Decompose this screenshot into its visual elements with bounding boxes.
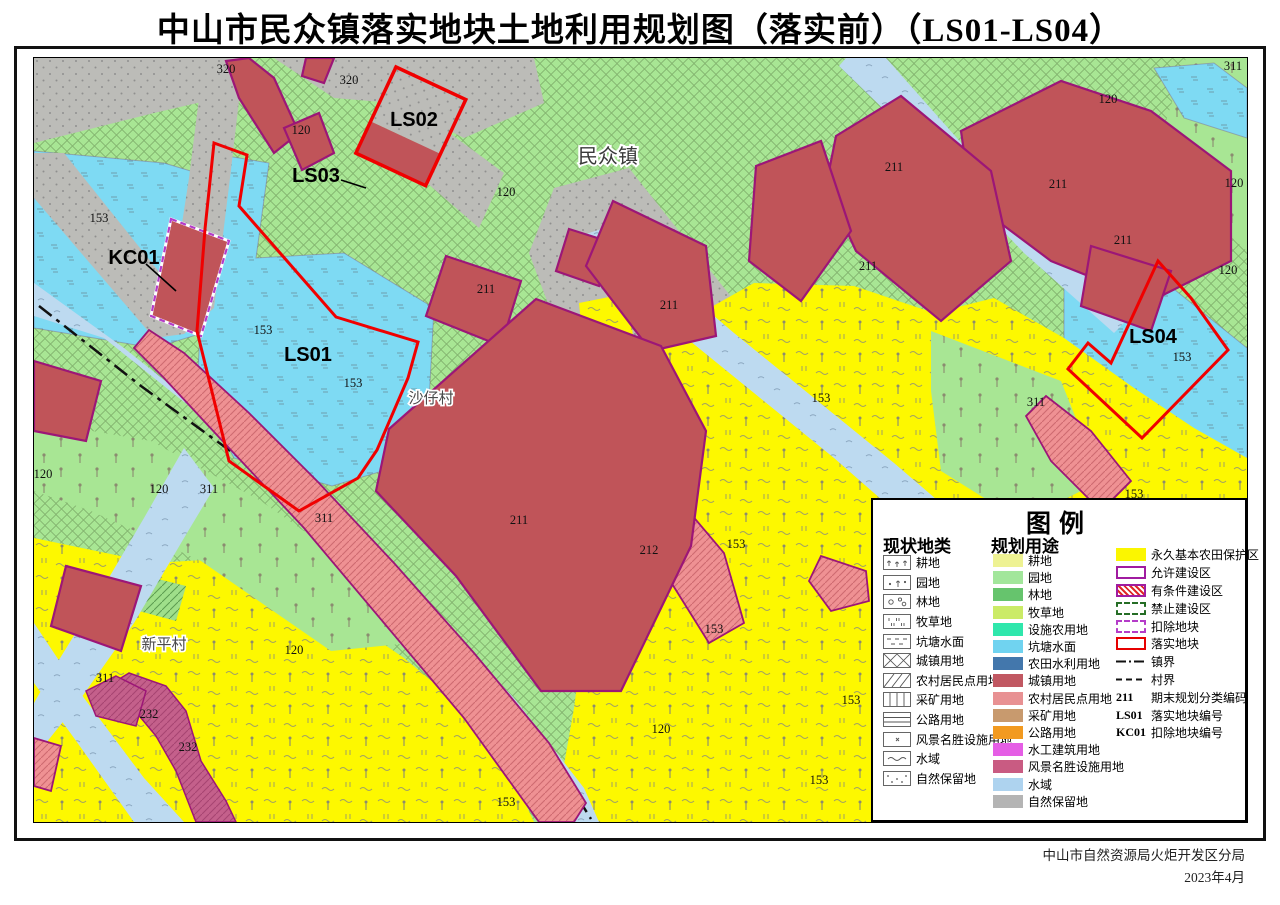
red-hatch-swatch xyxy=(1116,584,1146,597)
landuse-code-label: 153 xyxy=(727,537,746,551)
legend-label: 牧草地 xyxy=(1028,604,1064,621)
corner-dots-swatch xyxy=(883,771,911,786)
circles-swatch xyxy=(883,594,911,609)
landuse-code-label: 211 xyxy=(477,282,495,296)
ls03-label: LS03 xyxy=(292,165,340,187)
ls01-label: LS01 xyxy=(284,344,332,366)
landuse-code-label: 211 xyxy=(885,160,903,174)
legend-label: 坑塘水面 xyxy=(1028,638,1076,655)
民众镇-label: 民众镇 xyxy=(578,145,638,168)
legend-label: 设施农用地 xyxy=(1028,621,1088,638)
attribution-agency: 中山市自然资源局火炬开发区分局 xyxy=(0,845,1245,867)
新平村-label: 新平村 xyxy=(141,636,186,653)
legend-label: 城镇用地 xyxy=(1028,672,1076,689)
landuse-code-label: 311 xyxy=(1027,395,1045,409)
legend-label: 有条件建设区 xyxy=(1151,582,1223,599)
legend-label: 农田水利用地 xyxy=(1028,655,1100,672)
legend-item-zone-7: 村界 xyxy=(1116,671,1259,689)
legend-item-zone-4: 扣除地块 xyxy=(1116,617,1259,635)
legend-label: 落实地块 xyxy=(1151,635,1199,652)
map-sheet: 中山市民众镇落实地块土地利用规划图（落实前）（LS01-LS04） xyxy=(0,0,1280,905)
color-swatch xyxy=(993,709,1023,722)
legend-label: 坑塘水面 xyxy=(916,633,964,650)
landuse-code-label: 311 xyxy=(1224,59,1242,73)
zone-code: KC01 xyxy=(1116,725,1146,740)
landuse-code-label: 120 xyxy=(652,722,671,736)
landuse-code-label: 153 xyxy=(254,323,273,337)
legend-label: 镇界 xyxy=(1151,653,1175,670)
green-dashed-swatch xyxy=(1116,602,1146,615)
dashdot-line-swatch xyxy=(1116,655,1146,668)
legend-label: 林地 xyxy=(916,593,940,610)
attribution: 中山市自然资源局火炬开发区分局 2023年4月 xyxy=(0,845,1245,890)
dashes-swatch xyxy=(883,634,911,649)
legend-planned-column: 耕地园地林地牧草地设施农用地坑塘水面农田水利用地城镇用地农村居民点用地采矿用地公… xyxy=(993,552,1124,810)
legend-item-planned-0: 耕地 xyxy=(993,552,1124,569)
legend-label: 水域 xyxy=(1028,776,1052,793)
color-swatch xyxy=(993,778,1023,791)
red-outline-swatch xyxy=(1116,637,1146,650)
color-swatch xyxy=(993,760,1023,773)
landuse-code-label: 320 xyxy=(340,73,359,87)
landuse-code-label: 211 xyxy=(1049,177,1067,191)
color-swatch xyxy=(993,726,1023,739)
沙仔村-label: 沙仔村 xyxy=(408,390,453,407)
landuse-code-label: 153 xyxy=(810,773,829,787)
attribution-date: 2023年4月 xyxy=(0,867,1245,889)
color-swatch xyxy=(993,674,1023,687)
legend: 图例 现状地类 规划用途 耕地园地林地牧草地坑塘水面城镇用地农村居民点用地采矿用… xyxy=(871,498,1247,822)
legend-label: 禁止建设区 xyxy=(1151,600,1211,617)
landuse-code-label: 120 xyxy=(34,467,52,481)
landuse-code-label: 212 xyxy=(640,543,659,557)
landuse-code-label: 320 xyxy=(217,62,236,76)
legend-label: 期末规划分类编码 xyxy=(1151,689,1247,706)
ls02-label: LS02 xyxy=(390,109,438,131)
color-swatch xyxy=(993,692,1023,705)
legend-item-planned-7: 城镇用地 xyxy=(993,672,1124,689)
legend-label: 园地 xyxy=(1028,569,1052,586)
legend-label: 采矿用地 xyxy=(916,691,964,708)
landuse-code-label: 120 xyxy=(150,482,169,496)
color-swatch xyxy=(993,588,1023,601)
color-swatch xyxy=(993,623,1023,636)
legend-label: 牧草地 xyxy=(916,613,952,630)
legend-item-planned-12: 风景名胜设施用地 xyxy=(993,758,1124,775)
legend-label: 村界 xyxy=(1151,671,1175,688)
landuse-code-label: 311 xyxy=(315,511,333,525)
legend-label: 农村居民点用地 xyxy=(916,672,1000,689)
landuse-code-label: 311 xyxy=(96,671,114,685)
landuse-code-label: 153 xyxy=(344,376,363,390)
hlines-swatch xyxy=(883,712,911,727)
legend-label: 永久基本农田保护区 xyxy=(1151,546,1259,563)
zone-code: 211 xyxy=(1116,690,1146,705)
color-swatch xyxy=(993,657,1023,670)
color-swatch xyxy=(993,640,1023,653)
legend-label: 落实地块编号 xyxy=(1151,707,1223,724)
plant-dot-swatch xyxy=(883,575,911,590)
purple-dashed-swatch xyxy=(1116,620,1146,633)
legend-item-planned-8: 农村居民点用地 xyxy=(993,690,1124,707)
corner-x-swatch xyxy=(883,732,911,747)
landuse-code-label: 211 xyxy=(510,513,528,527)
legend-label: 扣除地块 xyxy=(1151,618,1199,635)
kc01-label: KC01 xyxy=(108,247,159,269)
legend-label: 允许建设区 xyxy=(1151,564,1211,581)
legend-item-planned-9: 采矿用地 xyxy=(993,707,1124,724)
color-swatch xyxy=(993,743,1023,756)
legend-label: 扣除地块编号 xyxy=(1151,724,1223,741)
page-title: 中山市民众镇落实地块土地利用规划图（落实前）（LS01-LS04） xyxy=(0,3,1280,51)
color-swatch xyxy=(993,554,1023,567)
landuse-code-label: 153 xyxy=(705,622,724,636)
legend-zones-column: 永久基本农田保护区允许建设区有条件建设区禁止建设区扣除地块落实地块镇界村界211… xyxy=(1116,546,1259,742)
landuse-code-label: 120 xyxy=(1219,263,1238,277)
map-canvas: 3203201201201531531532112112112121201203… xyxy=(33,57,1248,823)
legend-label: 城镇用地 xyxy=(916,652,964,669)
legend-label: 耕地 xyxy=(916,554,940,571)
legend-label: 耕地 xyxy=(1028,552,1052,569)
legend-item-planned-14: 自然保留地 xyxy=(993,793,1124,810)
legend-label: 公路用地 xyxy=(1028,724,1076,741)
legend-item-planned-3: 牧草地 xyxy=(993,604,1124,621)
landuse-code-label: 153 xyxy=(90,211,109,225)
legend-label: 公路用地 xyxy=(916,711,964,728)
legend-item-zone-8: 211期末规划分类编码 xyxy=(1116,688,1259,706)
color-swatch xyxy=(993,571,1023,584)
landuse-code-label: 211 xyxy=(859,259,877,273)
yellow-fill-swatch xyxy=(1116,548,1146,561)
dashed-line-swatch xyxy=(1116,673,1146,686)
legend-item-zone-3: 禁止建设区 xyxy=(1116,599,1259,617)
vlines-swatch xyxy=(883,692,911,707)
landuse-code-label: 211 xyxy=(1114,233,1132,247)
legend-item-planned-6: 农田水利用地 xyxy=(993,655,1124,672)
legend-item-zone-10: KC01扣除地块编号 xyxy=(1116,724,1259,742)
landuse-code-label: 153 xyxy=(842,693,861,707)
landuse-code-label: 232 xyxy=(179,740,198,754)
legend-item-planned-5: 坑塘水面 xyxy=(993,638,1124,655)
landuse-code-label: 311 xyxy=(200,482,218,496)
short-vlines-swatch xyxy=(883,614,911,629)
cross-lattice-swatch xyxy=(883,653,911,668)
legend-label: 水工建筑用地 xyxy=(1028,741,1100,758)
legend-label: 林地 xyxy=(1028,586,1052,603)
plant-rows-swatch xyxy=(883,555,911,570)
diagonal-lines-swatch xyxy=(883,673,911,688)
legend-item-zone-6: 镇界 xyxy=(1116,653,1259,671)
legend-item-planned-13: 水域 xyxy=(993,775,1124,792)
legend-label: 风景名胜设施用地 xyxy=(1028,758,1124,775)
legend-item-zone-2: 有条件建设区 xyxy=(1116,582,1259,600)
legend-item-zone-1: 允许建设区 xyxy=(1116,564,1259,582)
legend-label: 自然保留地 xyxy=(916,770,976,787)
color-swatch xyxy=(993,606,1023,619)
legend-item-planned-10: 公路用地 xyxy=(993,724,1124,741)
ls04-label: LS04 xyxy=(1129,326,1178,348)
landuse-code-label: 232 xyxy=(140,707,159,721)
legend-item-zone-0: 永久基本农田保护区 xyxy=(1116,546,1259,564)
legend-item-planned-2: 林地 xyxy=(993,586,1124,603)
legend-label: 园地 xyxy=(916,574,940,591)
landuse-code-label: 120 xyxy=(1225,176,1244,190)
legend-item-zone-9: LS01落实地块编号 xyxy=(1116,706,1259,724)
landuse-code-label: 120 xyxy=(292,123,311,137)
legend-label: 自然保留地 xyxy=(1028,793,1088,810)
legend-item-zone-5: 落实地块 xyxy=(1116,635,1259,653)
landuse-code-label: 120 xyxy=(285,643,304,657)
color-swatch xyxy=(993,795,1023,808)
landuse-code-label: 153 xyxy=(1173,350,1192,364)
tilde-swatch xyxy=(883,751,911,766)
landuse-code-label: 153 xyxy=(812,391,831,405)
legend-label: 农村居民点用地 xyxy=(1028,690,1112,707)
legend-label: 采矿用地 xyxy=(1028,707,1076,724)
zone-code: LS01 xyxy=(1116,708,1146,723)
purple-outline-swatch xyxy=(1116,566,1146,579)
legend-item-planned-4: 设施农用地 xyxy=(993,621,1124,638)
legend-item-planned-11: 水工建筑用地 xyxy=(993,741,1124,758)
legend-item-planned-1: 园地 xyxy=(993,569,1124,586)
landuse-code-label: 120 xyxy=(1099,92,1118,106)
landuse-code-label: 211 xyxy=(660,298,678,312)
landuse-code-label: 153 xyxy=(497,795,516,809)
landuse-code-label: 120 xyxy=(497,185,516,199)
legend-label: 水域 xyxy=(916,750,940,767)
